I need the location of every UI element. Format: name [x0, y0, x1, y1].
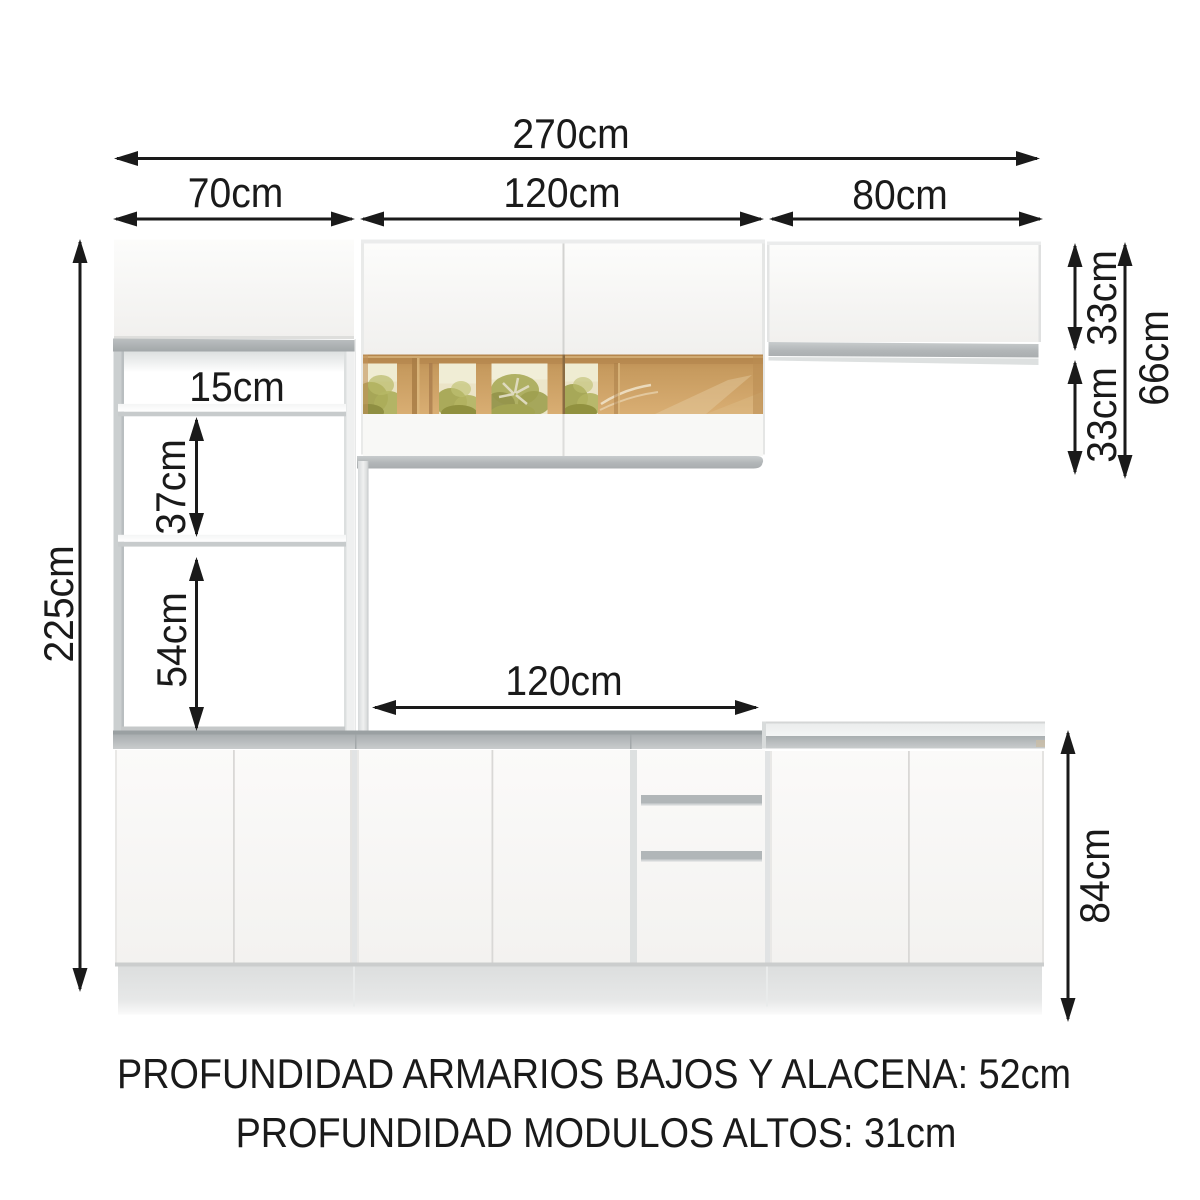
svg-text:33cm: 33cm [1078, 367, 1126, 462]
svg-text:80cm: 80cm [852, 171, 947, 219]
svg-text:PROFUNDIDAD ARMARIOS BAJOS Y A: PROFUNDIDAD ARMARIOS BAJOS Y ALACENA: 52… [117, 1051, 1071, 1097]
svg-text:15cm: 15cm [189, 363, 284, 411]
svg-text:33cm: 33cm [1078, 250, 1126, 345]
svg-text:37cm: 37cm [147, 439, 195, 534]
svg-text:54cm: 54cm [148, 592, 196, 687]
svg-text:120cm: 120cm [503, 169, 620, 217]
svg-text:270cm: 270cm [512, 110, 629, 158]
svg-text:225cm: 225cm [35, 545, 83, 662]
svg-text:66cm: 66cm [1130, 310, 1178, 405]
svg-text:PROFUNDIDAD MODULOS ALTOS: 31c: PROFUNDIDAD MODULOS ALTOS: 31cm [236, 1110, 957, 1156]
svg-text:120cm: 120cm [505, 657, 622, 705]
svg-text:70cm: 70cm [188, 169, 283, 217]
svg-text:84cm: 84cm [1071, 828, 1119, 923]
